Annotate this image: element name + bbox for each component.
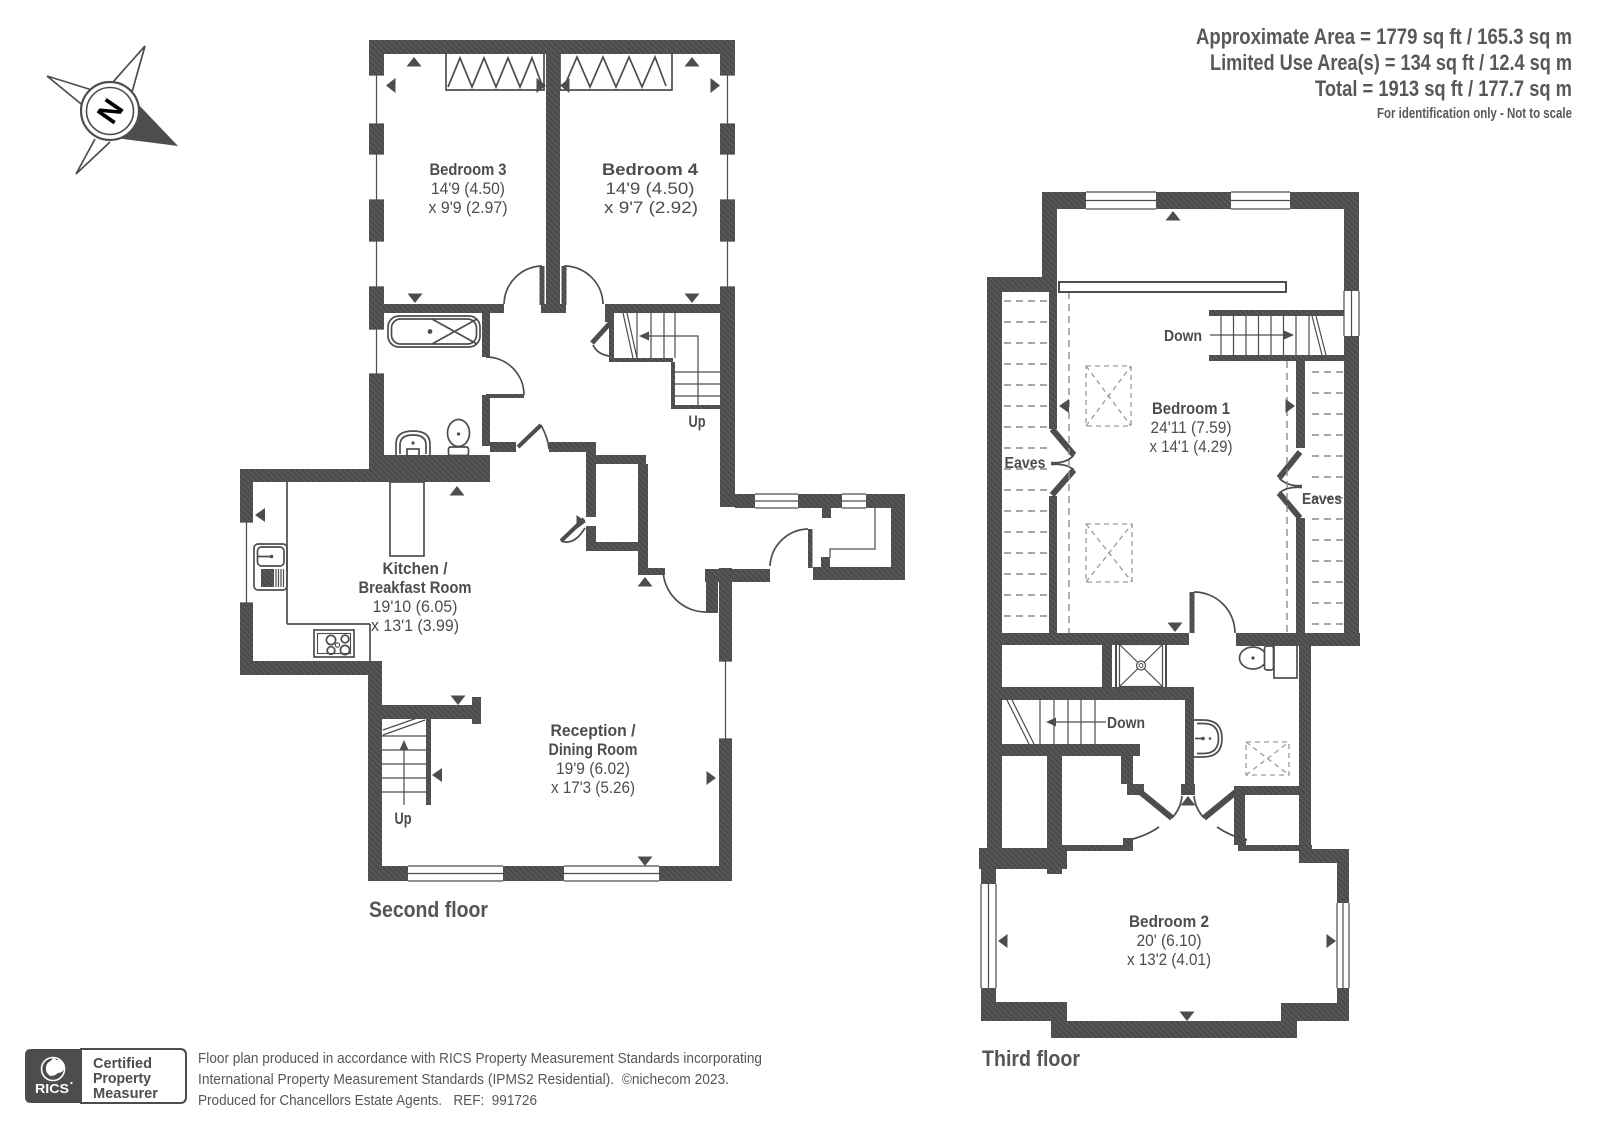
svg-text:x 9'9 (2.97): x 9'9 (2.97) <box>429 199 508 217</box>
svg-text:Approximate Area = 1779 sq ft: Approximate Area = 1779 sq ft / 165.3 sq… <box>1196 24 1572 49</box>
svg-text:Down: Down <box>1107 715 1145 732</box>
svg-text:Reception /: Reception / <box>551 722 636 740</box>
svg-text:For identification only - Not: For identification only - Not to scale <box>1377 105 1572 122</box>
svg-text:x 13'1 (3.99): x 13'1 (3.99) <box>371 617 459 635</box>
svg-text:Eaves: Eaves <box>1005 455 1046 472</box>
svg-text:RICS: RICS <box>35 1081 69 1096</box>
svg-text:Bedroom 4: Bedroom 4 <box>602 161 699 179</box>
svg-text:Third floor: Third floor <box>982 1046 1080 1071</box>
svg-text:14'9 (4.50): 14'9 (4.50) <box>431 180 505 198</box>
svg-text:Up: Up <box>395 809 412 828</box>
svg-text:Limited Use Area(s) = 134 sq f: Limited Use Area(s) = 134 sq ft / 12.4 s… <box>1210 50 1572 75</box>
svg-text:Total = 1913 sq ft / 177.7 sq: Total = 1913 sq ft / 177.7 sq m <box>1315 76 1572 101</box>
svg-text:Bedroom 1: Bedroom 1 <box>1152 400 1230 418</box>
svg-text:Up: Up <box>689 412 706 431</box>
svg-text:19'9 (6.02): 19'9 (6.02) <box>556 760 630 778</box>
svg-text:Kitchen /: Kitchen / <box>383 560 448 578</box>
svg-text:International Property Measure: International Property Measurement Stand… <box>198 1072 729 1088</box>
svg-text:Bedroom 2: Bedroom 2 <box>1129 913 1209 931</box>
svg-text:19'10 (6.05): 19'10 (6.05) <box>373 598 458 616</box>
svg-text:x 13'2 (4.01): x 13'2 (4.01) <box>1127 951 1211 969</box>
svg-text:x 14'1 (4.29): x 14'1 (4.29) <box>1150 438 1233 456</box>
svg-text:x 17'3 (5.26): x 17'3 (5.26) <box>551 779 635 797</box>
svg-text:Floor plan produced in accorda: Floor plan produced in accordance with R… <box>198 1051 762 1067</box>
svg-text:Measurer: Measurer <box>93 1085 158 1102</box>
svg-text:Produced for Chancellors Estat: Produced for Chancellors Estate Agents. … <box>198 1093 537 1109</box>
svg-text:x 9'7 (2.92): x 9'7 (2.92) <box>604 199 698 217</box>
svg-text:24'11 (7.59): 24'11 (7.59) <box>1151 419 1232 437</box>
svg-text:14'9 (4.50): 14'9 (4.50) <box>606 180 695 198</box>
svg-text:Bedroom 3: Bedroom 3 <box>430 161 507 179</box>
svg-text:Breakfast Room: Breakfast Room <box>359 579 472 597</box>
svg-text:Eaves: Eaves <box>1302 491 1342 508</box>
svg-text:20' (6.10): 20' (6.10) <box>1137 932 1202 950</box>
svg-text:Second floor: Second floor <box>369 897 488 922</box>
svg-text:Dining Room: Dining Room <box>549 741 638 759</box>
svg-text:Down: Down <box>1164 328 1202 345</box>
